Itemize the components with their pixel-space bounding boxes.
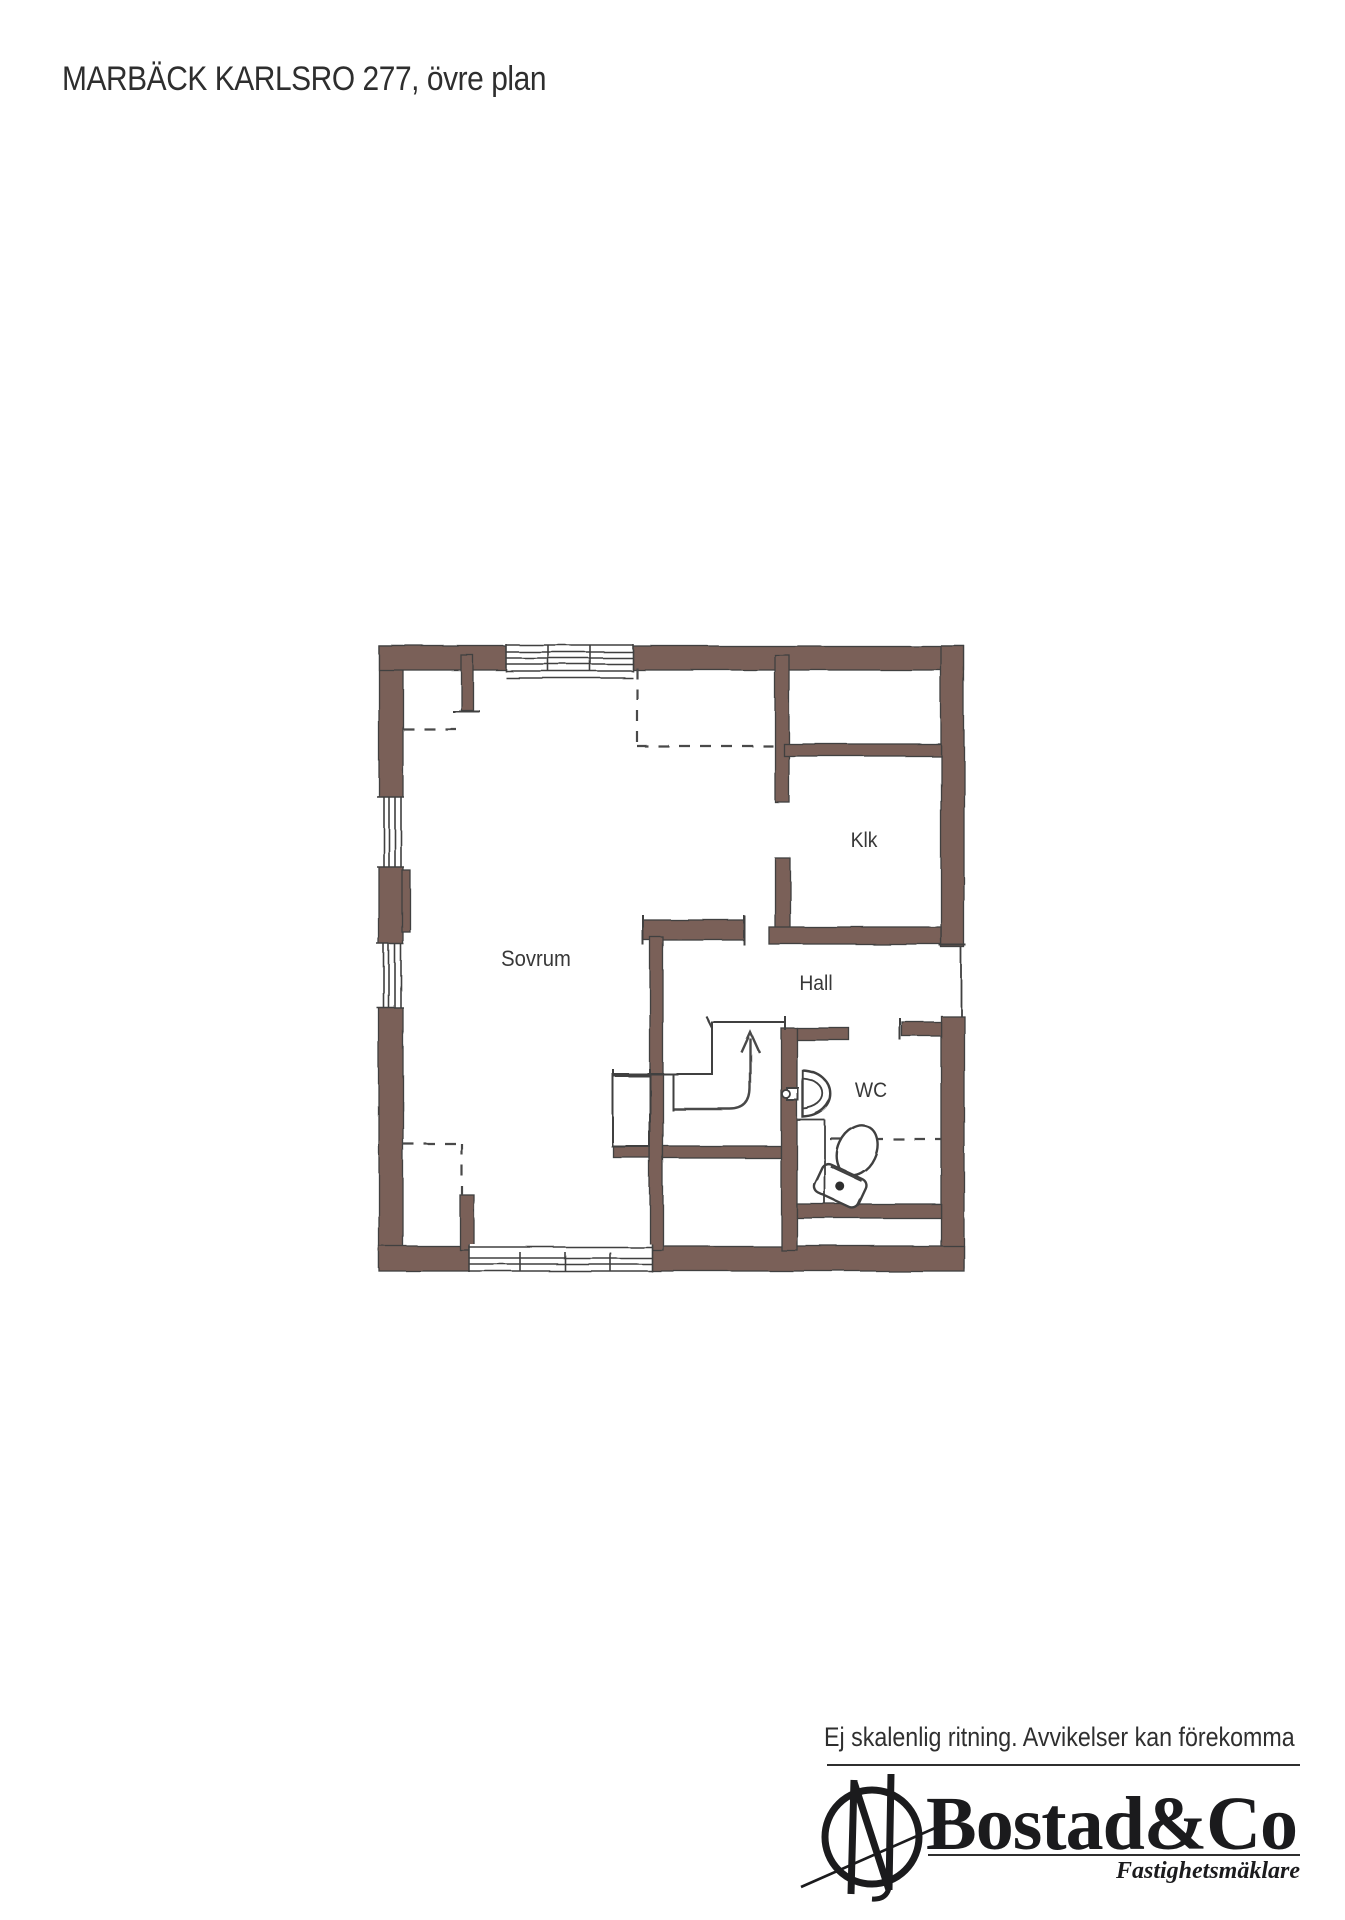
wall-right-upper: [941, 646, 964, 947]
wall-right-lower: [941, 1016, 964, 1268]
wall-left-bump: [402, 870, 410, 932]
wall-wc-top: [797, 1028, 849, 1040]
room-label-hall: Hall: [799, 972, 832, 996]
floor-plan: [0, 0, 1345, 1920]
stairs-arrow-icon: [674, 1032, 759, 1109]
wall-klk-b: [775, 858, 790, 930]
bottom-window: [469, 1244, 652, 1273]
wall-end-caps: [452, 711, 966, 1040]
room-label-klk: Klk: [851, 829, 878, 853]
disclaimer-text: Ej skalenlig ritning. Avvikelser kan för…: [824, 1722, 1295, 1753]
wall-wc-bottom: [797, 1204, 941, 1218]
wall-wc-top-stub: [902, 1022, 941, 1036]
wall-understair-stub: [614, 1147, 650, 1158]
wall-klk-a: [775, 655, 789, 802]
logo-n-hook: [872, 1888, 889, 1899]
wall-stub-bottom-left: [460, 1195, 474, 1250]
footer-divider: [827, 1764, 1300, 1766]
wall-stub-top-left: [461, 655, 473, 710]
brand-subtitle: Fastighetsmäklare: [1116, 1858, 1300, 1885]
room-label-wc: WC: [855, 1079, 887, 1103]
toilet-icon: [812, 1117, 890, 1211]
wall-topright-room: [784, 744, 941, 756]
left-window-1: [377, 797, 404, 867]
wall-understair: [663, 1146, 781, 1158]
top-window: [506, 644, 633, 678]
walls: [379, 646, 964, 1271]
brand-name: Bostad&Co: [926, 1786, 1297, 1862]
wall-klk-bottom: [769, 927, 941, 944]
brand-divider: [928, 1854, 1300, 1856]
left-window-2: [377, 944, 404, 1008]
wall-w1: [650, 937, 663, 1250]
wall-w2: [781, 1028, 797, 1250]
stairs: [613, 1016, 785, 1147]
room-label-sovrum: Sovrum: [501, 946, 571, 972]
